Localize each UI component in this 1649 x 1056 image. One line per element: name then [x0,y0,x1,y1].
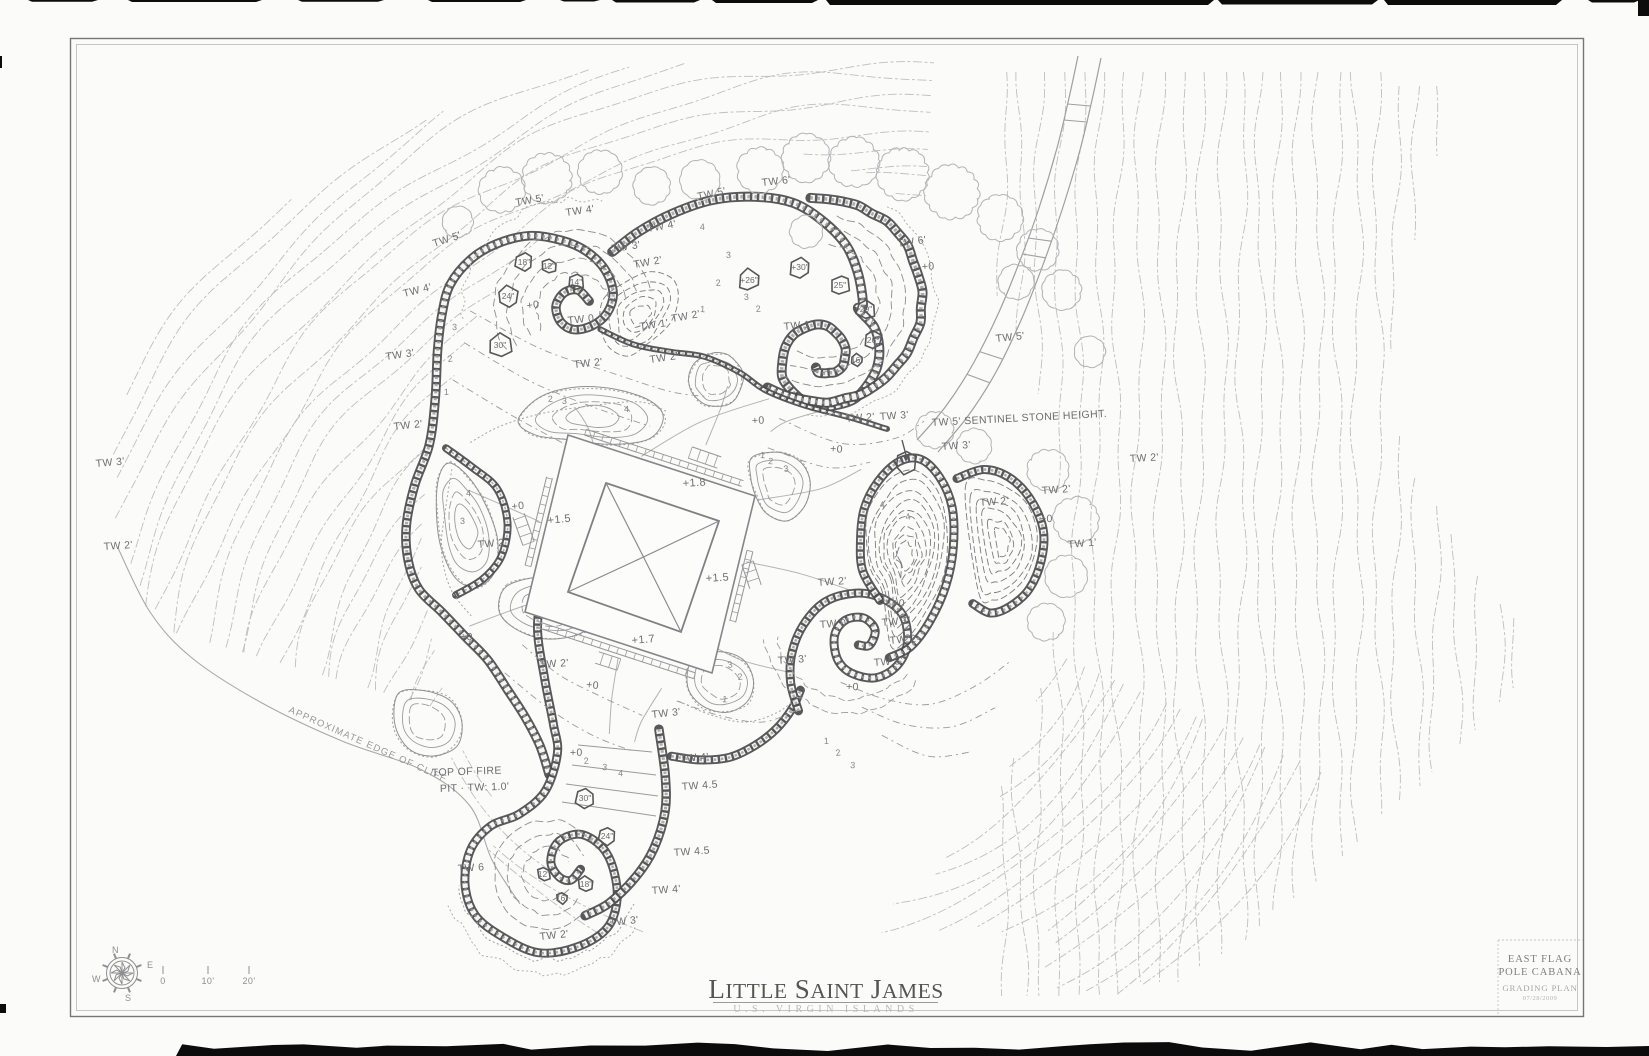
svg-text:TW 3': TW 3' [95,455,125,469]
svg-text:10': 10' [202,976,215,986]
svg-text:2: 2 [755,304,761,314]
svg-text:12": 12" [543,261,555,271]
svg-text:TW 2': TW 2' [1041,483,1071,497]
svg-text:2: 2 [715,278,721,288]
svg-text:3: 3 [744,292,750,302]
svg-text:TW 2': TW 2' [889,632,919,646]
svg-text:W: W [92,974,101,984]
svg-text:TOP OF FIRE: TOP OF FIRE [432,765,502,779]
svg-text:4: 4 [700,222,706,232]
svg-text:E: E [147,960,153,970]
svg-text:TW 2': TW 2' [979,495,1009,509]
svg-text:+0: +0 [460,631,473,643]
svg-text:TW 1': TW 1' [1067,536,1097,550]
svg-text:EAST FLAG: EAST FLAG [1508,954,1572,965]
svg-text:TW 1': TW 1' [783,318,813,332]
svg-text:POLE CABANA: POLE CABANA [1498,967,1581,978]
svg-text:24": 24" [601,831,613,841]
svg-text:TW 3': TW 3' [873,655,903,669]
svg-text:20': 20' [243,976,256,986]
svg-text:1: 1 [722,694,728,704]
svg-text:+1.5: +1.5 [705,571,729,585]
svg-text:2: 2 [583,756,589,766]
svg-text:1: 1 [824,736,830,746]
svg-text:4: 4 [466,488,472,498]
svg-text:TW 2': TW 2' [477,536,507,550]
svg-text:4: 4 [618,768,624,778]
svg-text:29": 29" [860,304,872,314]
svg-text:TW 4': TW 4' [651,883,681,897]
svg-text:S: S [125,993,131,1003]
svg-text:U.S. VIRGIN ISLANDS: U.S. VIRGIN ISLANDS [733,1004,918,1015]
svg-text:TW 2': TW 2' [817,575,847,589]
svg-text:3: 3 [726,250,732,260]
svg-text:4: 4 [624,404,630,414]
svg-text:+26": +26" [740,275,757,285]
svg-text:3: 3 [602,762,608,772]
svg-text:TW 2': TW 2' [539,657,569,671]
svg-text:TW 3': TW 3' [941,439,971,453]
svg-text:26": 26" [867,335,879,345]
svg-text:+0: +0 [526,299,540,312]
svg-text:30": 30" [579,793,591,803]
svg-text:TW 4.5: TW 4.5 [673,844,710,858]
svg-text:+0: +0 [570,747,583,759]
svg-text:1: 1 [444,387,450,397]
svg-text:+30": +30" [791,262,808,272]
svg-text:+0: +0 [752,414,765,427]
svg-text:1: 1 [760,450,766,460]
svg-text:14": 14" [570,277,582,287]
svg-text:TW 0': TW 0' [819,617,849,631]
svg-text:+1.5: +1.5 [547,513,571,527]
svg-text:+0: +0 [892,597,905,610]
svg-text:TW 3': TW 3' [777,653,807,667]
svg-text:TW 1': TW 1' [881,614,911,628]
svg-text:TW 3': TW 3' [879,409,909,423]
svg-text:LITTLE SAINT JAMES: LITTLE SAINT JAMES [708,974,943,1004]
svg-text:24": 24" [502,291,514,301]
svg-text:30": 30" [494,340,506,350]
svg-text:16": 16" [851,355,863,365]
svg-text:+0: +0 [1040,513,1053,525]
svg-text:+1.8: +1.8 [682,476,706,490]
svg-text:3: 3 [460,516,466,526]
svg-text:0: 0 [160,976,165,986]
svg-text:16": 16" [556,893,568,903]
svg-text:2: 2 [548,394,554,404]
svg-text:TW 2': TW 2' [845,411,875,425]
svg-text:TW 2': TW 2' [103,539,133,553]
svg-text:12": 12" [538,869,550,879]
svg-text:18": 18" [580,879,592,889]
svg-text:TW 4.5: TW 4.5 [681,778,718,792]
svg-text:TW 6: TW 6 [457,861,484,875]
svg-text:+0: +0 [846,681,859,693]
svg-text:PIT · TW: 1.0': PIT · TW: 1.0' [440,781,510,795]
svg-text:+0: +0 [830,443,843,456]
svg-text:07/28/2009: 07/28/2009 [1523,995,1558,1002]
svg-text:1: 1 [700,304,706,314]
svg-text:+1.7: +1.7 [631,633,655,647]
svg-text:GRADING PLAN: GRADING PLAN [1502,983,1577,993]
svg-text:TW 2': TW 2' [1130,451,1160,465]
svg-text:TW 4': TW 4' [679,751,709,765]
svg-text:N: N [112,945,119,955]
svg-text:18": 18" [518,257,530,267]
svg-text:3: 3 [452,322,458,332]
svg-text:3: 3 [562,396,568,406]
svg-text:+0: +0 [511,500,525,513]
svg-text:25": 25" [834,280,846,290]
svg-text:+0: +0 [922,260,935,273]
svg-text:3: 3 [850,760,856,770]
svg-text:2: 2 [768,456,774,466]
svg-text:+0: +0 [586,679,600,692]
